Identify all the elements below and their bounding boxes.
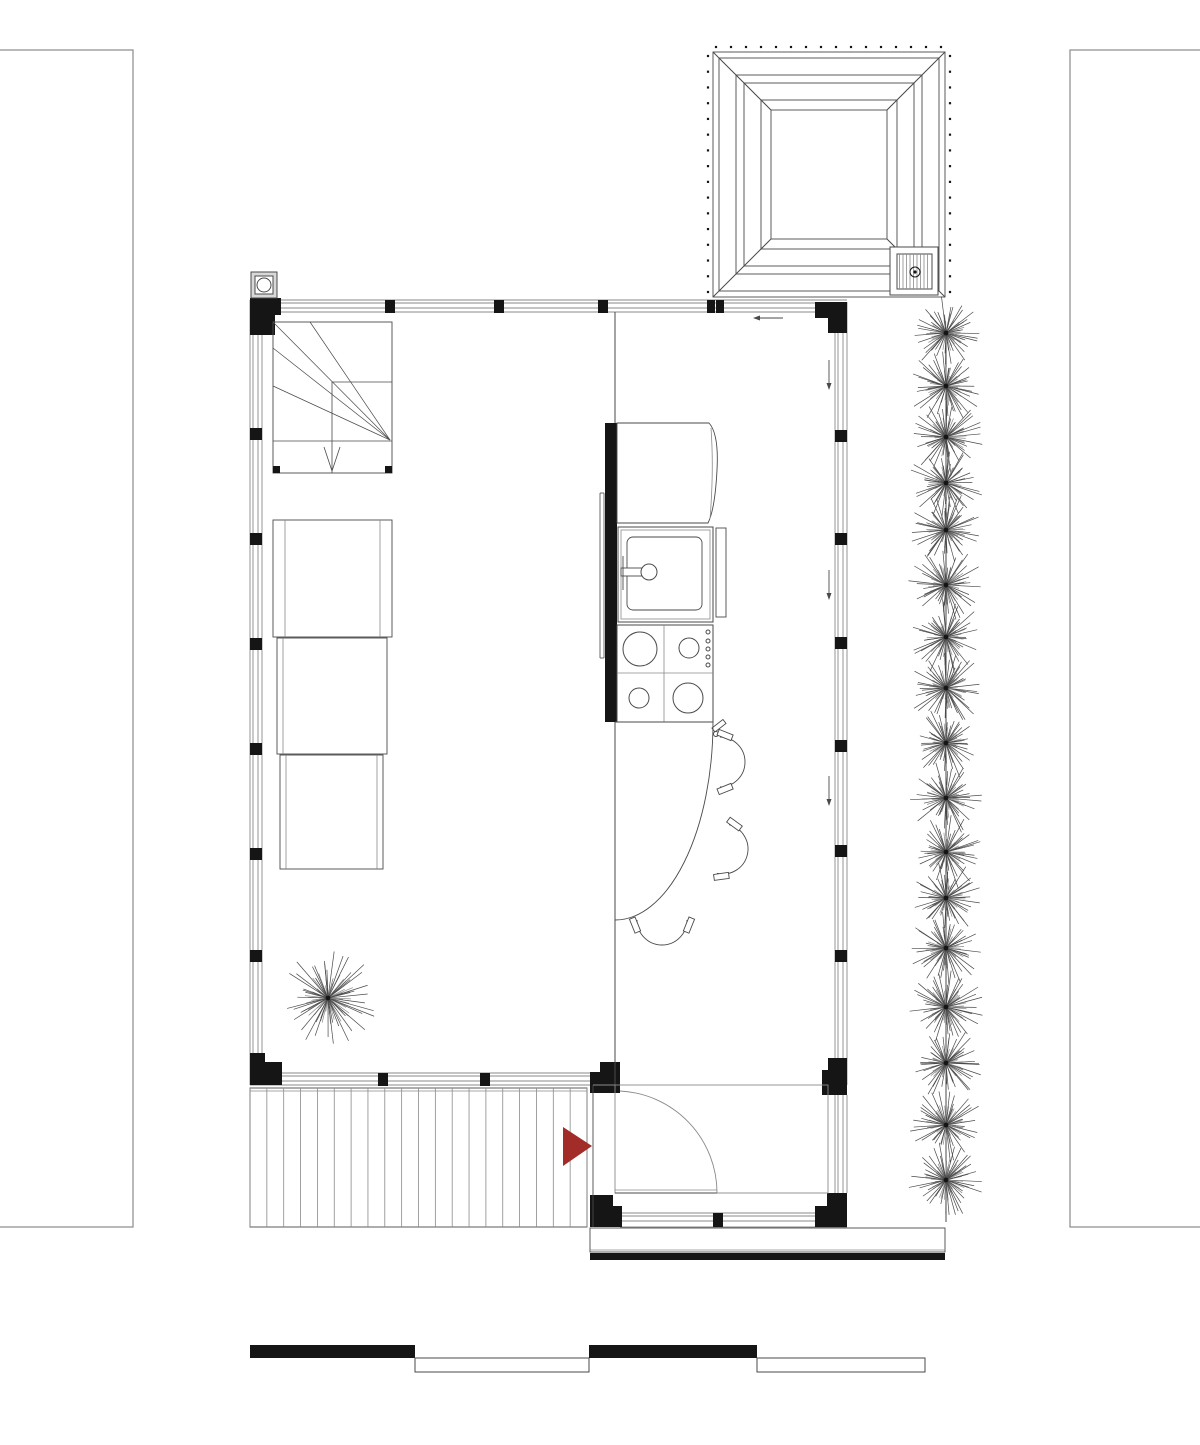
stair (332, 447, 340, 471)
plant-center (944, 331, 949, 336)
porch (593, 1085, 828, 1193)
pergola-roof (736, 75, 922, 274)
chair-seat (717, 825, 753, 880)
wall-columns (835, 845, 847, 857)
pergola-roof (707, 55, 709, 57)
corner-columns (590, 1195, 622, 1227)
chair-seat (637, 920, 687, 945)
neighbor-building-left (0, 50, 133, 1227)
direction-arrow-head (827, 799, 832, 806)
kitchen-counter (641, 564, 657, 580)
plant-frond (921, 438, 945, 464)
corner-columns (822, 1058, 847, 1095)
pergola-roof (713, 52, 771, 110)
plant-center (944, 384, 949, 389)
wall-columns (713, 1213, 723, 1227)
neighbor-building-left (0, 50, 133, 1227)
wall-columns (835, 430, 847, 442)
pergola-roof (713, 239, 771, 297)
plant-frond (947, 854, 969, 881)
floor-plan-svg (0, 0, 1200, 1445)
entry-arrow (563, 1127, 592, 1166)
plant-frond (926, 529, 944, 530)
chair-seat (720, 737, 745, 787)
plant-center (944, 1123, 949, 1128)
pergola-roof (910, 46, 912, 48)
plant-center (944, 481, 949, 486)
pergola-roof (949, 149, 951, 151)
wall-columns (385, 300, 395, 313)
kitchen-counter (605, 423, 617, 722)
wall-columns (480, 1073, 490, 1086)
plant-center (944, 635, 949, 640)
wall-columns (716, 300, 724, 313)
stair (385, 466, 392, 473)
pergola-roof (835, 46, 837, 48)
plant-frond (947, 819, 964, 850)
plant-frond (947, 773, 956, 796)
plant-frond (330, 999, 365, 1029)
plant-frond (948, 484, 982, 495)
chair (629, 917, 694, 945)
porch (615, 1085, 828, 1193)
pergola-roof (949, 291, 951, 293)
wall-columns (494, 300, 504, 313)
corner-columns (250, 298, 281, 335)
plant-frond (947, 663, 973, 687)
plant-center (326, 996, 331, 1001)
pergola-roof (707, 212, 709, 214)
plant-center (944, 528, 949, 533)
plant-frond (926, 1008, 945, 1028)
wall-columns (250, 428, 262, 440)
plant-center (944, 741, 949, 746)
direction-arrow-head (827, 593, 832, 600)
plant-center (944, 1005, 949, 1010)
pergola-roof (715, 46, 717, 48)
pergola-roof (895, 46, 897, 48)
pergola-roof (707, 291, 709, 293)
pergola-roof (949, 197, 951, 199)
corner-columns (250, 1053, 282, 1085)
chair (717, 729, 745, 794)
plant-center (944, 946, 949, 951)
landing-step (590, 1228, 945, 1260)
plant-frond (913, 949, 944, 964)
pergola-roof (850, 46, 852, 48)
pergola-roof (949, 181, 951, 183)
chair-armrest (717, 783, 733, 794)
pergola-roof (707, 275, 709, 277)
sofa (280, 755, 383, 869)
direction-arrow-head (753, 316, 760, 321)
corner-columns (815, 1193, 847, 1227)
pergola-roof (707, 228, 709, 230)
entry-post (257, 278, 271, 292)
pergola-roof (949, 134, 951, 136)
pergola-roof (949, 55, 951, 57)
stair (310, 322, 390, 440)
plant-center (944, 686, 949, 691)
pergola-roof (949, 102, 951, 104)
pergola-roof (949, 228, 951, 230)
pergola-roof (865, 46, 867, 48)
plant-center (944, 435, 949, 440)
pergola-skylight (890, 247, 938, 295)
pergola-roof (790, 46, 792, 48)
pergola-roof (707, 86, 709, 88)
corner-columns (815, 302, 847, 333)
floor-plan-canvas (0, 0, 1200, 1445)
pergola-roof (949, 259, 951, 261)
pergola-roof (949, 212, 951, 214)
wall-columns (835, 740, 847, 752)
kitchen-counter (716, 528, 726, 617)
stair (324, 447, 332, 471)
pergola-roof (880, 46, 882, 48)
wall-columns (250, 533, 262, 545)
dining-table (615, 722, 713, 920)
pergola-roof (707, 149, 709, 151)
porch (620, 1091, 717, 1193)
wall-columns (250, 848, 262, 860)
chair-armrest (629, 917, 640, 933)
stair (273, 322, 392, 473)
pergola-roof (820, 46, 822, 48)
wall-columns (250, 950, 262, 962)
pergola-roof (949, 71, 951, 73)
plant-frond (947, 1156, 970, 1179)
plant-frond (914, 465, 944, 482)
pergola-roof (707, 102, 709, 104)
pergola-roof (771, 110, 887, 239)
plant-frond (926, 639, 945, 662)
pergola-roof (761, 100, 897, 249)
dining-table (615, 722, 755, 945)
pergola-roof (707, 118, 709, 120)
pergola-roof (707, 259, 709, 261)
stair (273, 322, 392, 473)
wall-columns (707, 300, 715, 313)
landing-step (590, 1253, 945, 1260)
pergola-roof (949, 165, 951, 167)
neighbor-building-right (1070, 50, 1200, 1227)
plant-center (944, 1178, 949, 1183)
scale-bar (757, 1358, 925, 1372)
pergola-roof (707, 71, 709, 73)
chair (712, 817, 755, 887)
chair-armrest (727, 817, 743, 831)
scale-bar (589, 1345, 757, 1358)
entry-arrow (563, 1127, 592, 1166)
plant-center (944, 796, 949, 801)
plant-frond (947, 772, 964, 796)
plant-frond (947, 1099, 968, 1124)
direction-arrow-head (827, 383, 832, 390)
pergola-roof (707, 165, 709, 167)
wall-columns (835, 950, 847, 962)
wall-columns (378, 1073, 388, 1086)
pergola-roof (707, 134, 709, 136)
pergola-roof (730, 46, 732, 48)
pergola-skylight (913, 270, 916, 273)
wall-columns (598, 300, 608, 313)
plant-center (944, 850, 949, 855)
pergola-roof (940, 46, 942, 48)
pergola-roof (775, 46, 777, 48)
plant-frond (948, 312, 974, 332)
plant-frond (918, 799, 945, 821)
chair-armrest (683, 917, 694, 933)
wall-columns (250, 638, 262, 650)
pergola-roof (949, 118, 951, 120)
scale-bar (415, 1358, 589, 1372)
hedge-plants (908, 296, 982, 1222)
plant-frond (946, 407, 951, 435)
plant-frond (297, 962, 327, 997)
pergola-roof (707, 197, 709, 199)
plant-center (944, 1061, 949, 1066)
plant-frond (934, 354, 945, 384)
plant-frond (948, 386, 972, 391)
pergola-roof (805, 46, 807, 48)
kitchen-counter (605, 423, 726, 737)
plant-frond (289, 973, 326, 997)
wall-columns (835, 637, 847, 649)
plant-center (944, 896, 949, 901)
stair (273, 466, 280, 473)
wall-columns (835, 533, 847, 545)
pergola-roof (887, 52, 945, 110)
kitchen-counter (617, 423, 717, 523)
pergola-roof (745, 46, 747, 48)
pergola-roof (707, 244, 709, 246)
chair-armrest (714, 872, 730, 880)
pergola-roof (925, 46, 927, 48)
stair (273, 322, 390, 440)
sofa (273, 520, 392, 637)
pergola-roof (949, 275, 951, 277)
plant-frond (947, 1038, 970, 1062)
plant-frond (947, 639, 968, 665)
plant-center (944, 583, 949, 588)
sofa (273, 520, 392, 869)
entry-post (251, 272, 277, 298)
wall-columns (250, 743, 262, 755)
indoor-plant (287, 951, 374, 1043)
sofa (277, 638, 387, 754)
scale-bar (250, 1345, 415, 1358)
chair-armrest (717, 729, 733, 740)
pergola-roof (707, 181, 709, 183)
pergola-roof (949, 244, 951, 246)
landing-step (590, 1228, 945, 1252)
pergola-roof (949, 86, 951, 88)
direction-arrows (753, 316, 832, 807)
deck (250, 1085, 593, 1227)
pergola-roof (760, 46, 762, 48)
kitchen-counter (617, 625, 713, 722)
scale-bar (250, 1345, 925, 1372)
plant-frond (948, 899, 968, 912)
neighbor-building-right (1070, 50, 1200, 1227)
